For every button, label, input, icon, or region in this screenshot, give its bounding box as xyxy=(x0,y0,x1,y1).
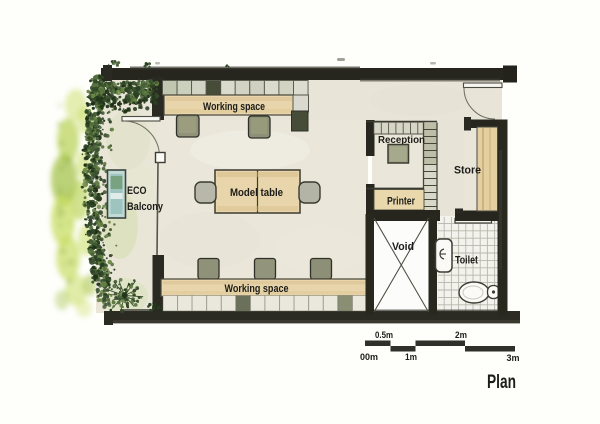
svg-text:1m: 1m xyxy=(405,351,417,362)
svg-text:Store: Store xyxy=(454,165,481,177)
svg-text:Toilet: Toilet xyxy=(455,255,478,267)
svg-text:ECO: ECO xyxy=(127,185,147,197)
svg-text:00m: 00m xyxy=(360,351,378,362)
svg-text:0.5m: 0.5m xyxy=(375,329,393,340)
svg-text:3m: 3m xyxy=(507,352,520,363)
svg-text:Working space: Working space xyxy=(225,283,289,295)
svg-text:Working space: Working space xyxy=(203,101,265,113)
svg-text:Balcony: Balcony xyxy=(127,201,164,213)
svg-text:Plan: Plan xyxy=(487,372,516,393)
svg-text:2m: 2m xyxy=(455,329,467,340)
svg-text:Void: Void xyxy=(392,241,414,253)
svg-text:Printer: Printer xyxy=(387,196,416,208)
svg-text:Model table: Model table xyxy=(230,187,283,199)
